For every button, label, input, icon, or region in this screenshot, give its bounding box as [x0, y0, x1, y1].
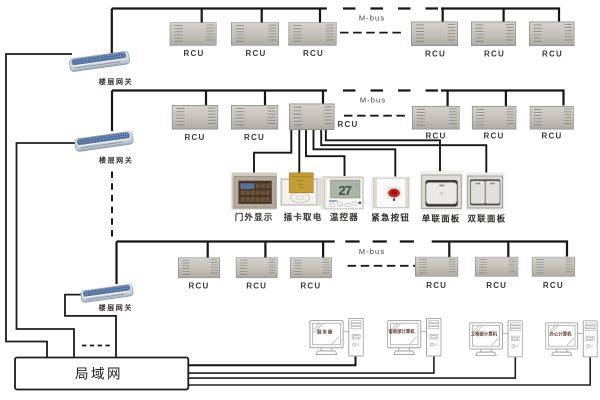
svg-text:楼层网关: 楼层网关	[99, 156, 133, 165]
svg-text:RCU: RCU	[246, 49, 267, 58]
svg-text:RCU: RCU	[486, 281, 507, 290]
svg-text:RCU: RCU	[338, 120, 359, 129]
svg-text:RCU: RCU	[185, 133, 206, 142]
svg-text:RCU: RCU	[189, 282, 210, 291]
svg-text:双联面板: 双联面板	[467, 214, 506, 224]
svg-text:单联面板: 单联面板	[422, 214, 461, 224]
svg-text:RCU: RCU	[484, 50, 505, 59]
svg-text:RCU: RCU	[246, 282, 267, 291]
svg-text:办公计算机: 办公计算机	[550, 330, 573, 337]
svg-text:RCU: RCU	[244, 133, 265, 142]
svg-text:RCU: RCU	[484, 132, 505, 141]
svg-text:RCU: RCU	[543, 281, 564, 290]
svg-text:RCU: RCU	[542, 132, 563, 141]
svg-text:M-bus: M-bus	[360, 96, 386, 105]
svg-text:客房部计算机: 客房部计算机	[387, 328, 415, 335]
svg-text:RCU: RCU	[300, 282, 321, 291]
svg-text:局域网: 局域网	[75, 367, 123, 382]
svg-text:27: 27	[339, 183, 352, 198]
svg-text:M-bus: M-bus	[359, 14, 385, 23]
svg-text:服务器: 服务器	[317, 329, 333, 336]
svg-text:温控器: 温控器	[330, 212, 359, 222]
svg-text:门外显示: 门外显示	[235, 212, 274, 222]
svg-text:RCU: RCU	[184, 49, 205, 58]
svg-text:插卡取电: 插卡取电	[284, 212, 323, 222]
svg-text:RCU: RCU	[426, 281, 447, 290]
svg-text:楼层网关: 楼层网关	[99, 303, 133, 312]
svg-text:RCU: RCU	[425, 50, 446, 59]
svg-text:RCU: RCU	[426, 132, 447, 141]
svg-text:RCU: RCU	[303, 49, 324, 58]
svg-text:RCU: RCU	[542, 50, 563, 59]
svg-text:工程部计算机: 工程部计算机	[471, 330, 498, 337]
svg-text:°: °	[356, 184, 358, 189]
svg-text:楼层网关: 楼层网关	[99, 77, 133, 86]
svg-text:M-bus: M-bus	[359, 247, 385, 256]
svg-text:紧急按钮: 紧急按钮	[371, 213, 410, 223]
